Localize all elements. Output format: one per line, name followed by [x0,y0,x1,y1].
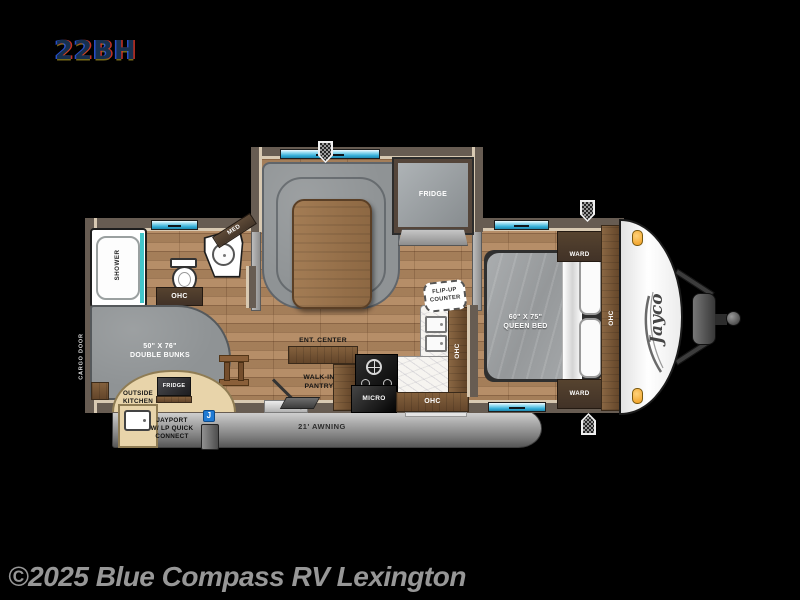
overhead-cabinet-kitchen-bottom: OHC [396,392,469,412]
double-bunks-label: 50" X 76" DOUBLE BUNKS [100,340,220,362]
jayport-line3: CONNECT [155,433,188,441]
window-sill [405,412,467,417]
refrigerator-step [398,229,468,246]
shower-glass [140,233,144,303]
jayport-line1: JAYPORT [156,417,187,425]
wardrobe-bottom: WARD [557,379,602,409]
bunks-name: DOUBLE BUNKS [130,351,190,360]
entry-step [280,397,320,409]
floorplan-canvas: 22BH 21' AWNING FRIDGE SHOWER OHC MED 50… [0,0,800,600]
bathroom-sink [212,243,235,266]
bunk-ladder [219,353,249,389]
jayport-icon: J [203,410,215,422]
refrigerator: FRIDGE [398,163,468,227]
bunk-shelf [91,382,109,400]
jayco-logo: Jayco [641,258,667,378]
slide-sidewall-right [472,231,482,311]
speaker-grille [582,202,593,220]
wall [467,305,478,397]
speaker-grille [320,143,331,161]
window [151,220,198,230]
bed-pillow [579,318,602,378]
copyright-watermark: ©2025 Blue Compass RV Lexington [8,562,466,593]
shower-label: SHOWER [113,236,123,294]
speaker-grille [583,415,594,433]
window [488,402,546,412]
window [494,220,549,230]
flip-up-counter: FLIP-UP COUNTER [423,279,468,313]
overhead-cabinet-bath: OHC [156,287,203,306]
bed-name: QUEEN BED [503,322,547,331]
bed-pillow [579,256,602,315]
pantry-line1: WALK-IN [303,374,334,383]
dinette-table [292,199,372,309]
outside-kitchen-line1: OUTSIDE [123,390,153,398]
overhead-cabinet-kitchen-side-label: OHC [453,321,463,381]
model-title: 22BH [55,38,137,64]
microwave: MICRO [351,385,397,413]
ladder-rung [219,355,249,362]
bunks-size: 50" X 76" [143,342,176,351]
walk-in-pantry-label: WALK-IN PANTRY [292,373,346,393]
jayport-label: JAYPORT W/ LP QUICK CONNECT [142,415,202,443]
wardrobe-top: WARD [557,231,602,262]
marker-light [632,388,643,404]
overhead-cabinet-bedroom-label: OHC [607,288,617,348]
kitchen-sink [425,316,447,333]
kitchen-sink [425,335,447,352]
exterior-speaker-icon [581,413,596,435]
jayport-line2: W/ LP QUICK [151,425,194,433]
marker-light [632,230,643,246]
outside-kitchen-fridge: FRIDGE [157,377,191,396]
jayport-lp-box [201,424,219,450]
entertainment-center-label: ENT. CENTER [290,337,356,346]
bed-size: 60" X 75" [509,313,542,322]
jayco-logo-text: Jayco [647,293,667,347]
jayco-logo-svg: Jayco [641,258,667,378]
burner [366,359,382,375]
ladder-rail [238,362,244,381]
pantry-line2: PANTRY [305,383,334,392]
wall [246,266,256,308]
entertainment-center [288,346,358,364]
queen-bed-label: 60" X 75" QUEEN BED [489,310,562,334]
tongue-jack-wheel [726,311,741,326]
ladder-rail [224,362,230,381]
propane-tank-cover [692,293,716,345]
awning-label: 21' AWNING [272,421,372,433]
cargo-door-label: CARGO DOOR [78,326,87,388]
